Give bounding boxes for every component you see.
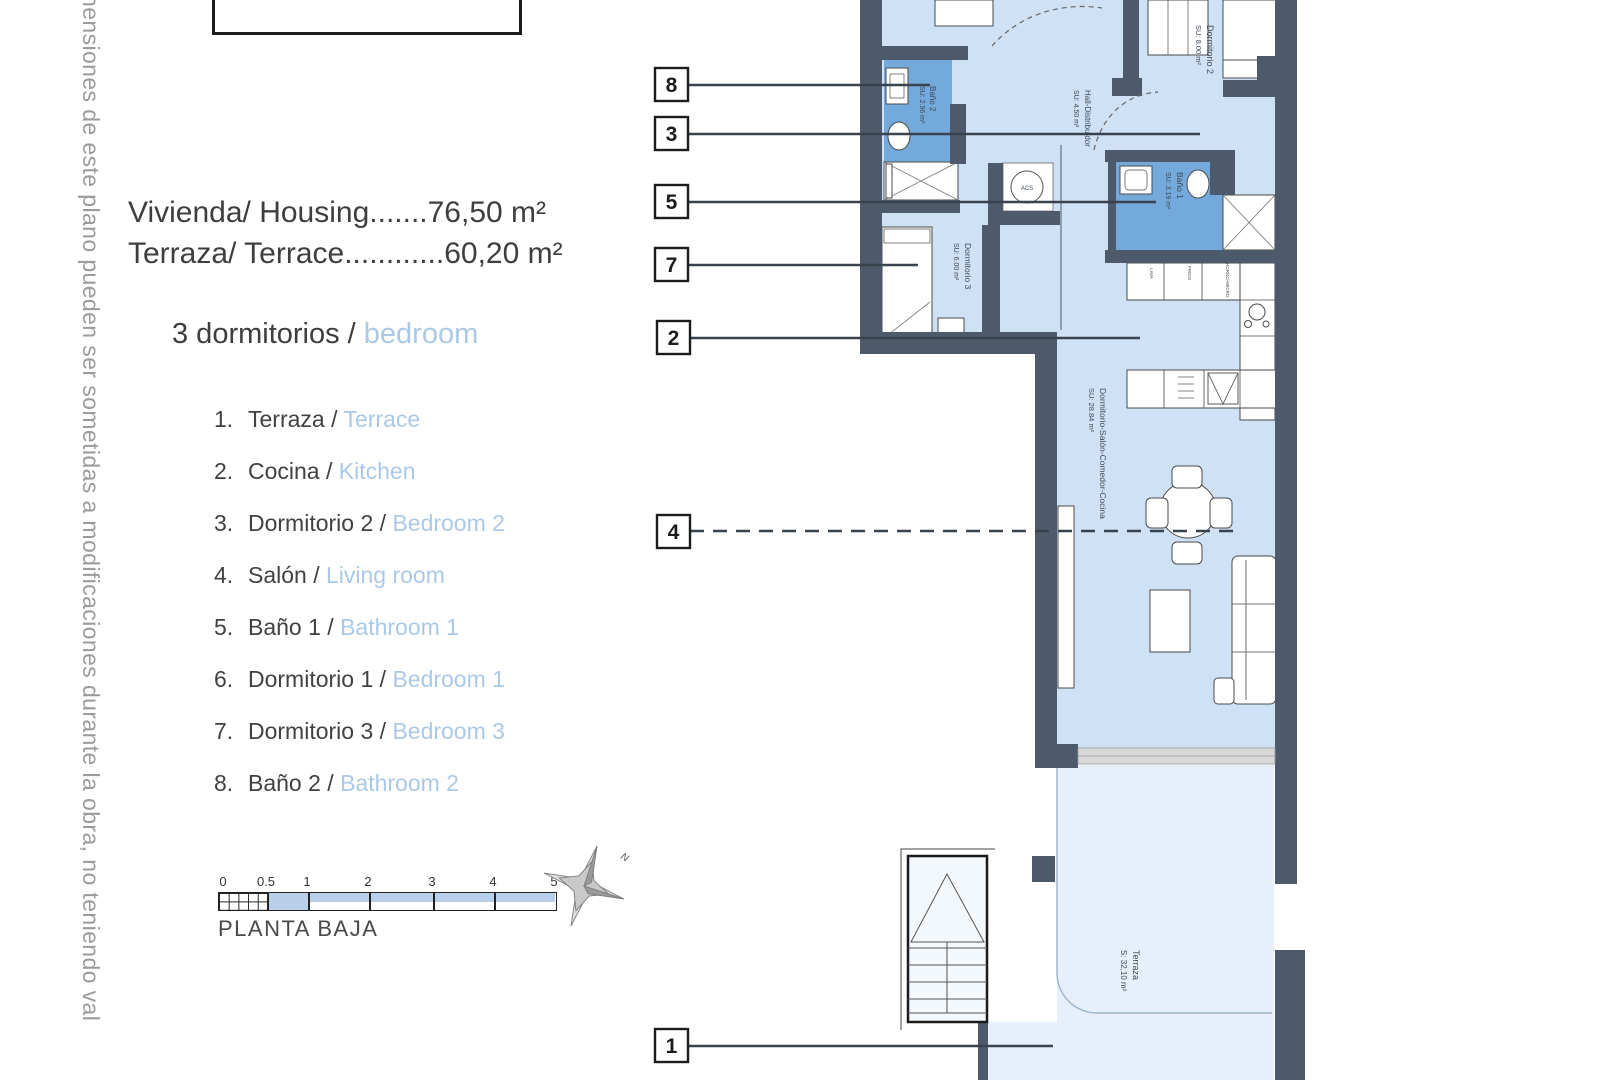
svg-text:SU: 8.00 m²: SU: 8.00 m²	[1194, 25, 1203, 66]
svg-text:SU: 4.50 m²: SU: 4.50 m²	[1072, 90, 1079, 128]
svg-text:8: 8	[666, 74, 678, 97]
callout-4: 4	[657, 515, 690, 548]
svg-text:Dormitorio 2: Dormitorio 2	[1205, 25, 1215, 74]
sliding-door	[1078, 748, 1275, 764]
svg-text:Terraza: Terraza	[1131, 950, 1141, 980]
callout-8: 8	[655, 68, 688, 101]
bed-dormitorio3	[882, 227, 932, 339]
chair	[1172, 466, 1202, 488]
tv-bench	[1058, 506, 1074, 688]
label-appliance-frigo: FRIGO	[1187, 266, 1192, 281]
svg-text:Baño 1: Baño 1	[1175, 172, 1185, 199]
appliance-row	[1127, 263, 1240, 300]
label-appliance-lava: LAVA	[1149, 268, 1154, 279]
terrace-floor	[987, 765, 1274, 1080]
svg-text:SU: 3.19 m²: SU: 3.19 m²	[1164, 172, 1171, 210]
coffee-table	[1150, 590, 1190, 652]
floor-plan: Baño 2 SU: 2.96 m² Hall-Distribuidor SU:…	[0, 0, 1620, 1080]
callout-2: 2	[657, 321, 690, 354]
toilet-bano2	[888, 122, 910, 150]
callout-7: 7	[655, 248, 688, 281]
svg-text:SU: 6.00 m²: SU: 6.00 m²	[952, 243, 959, 281]
svg-text:SU: 2.96 m²: SU: 2.96 m²	[918, 86, 925, 124]
svg-text:S: 32,10 m²: S: 32,10 m²	[1119, 950, 1128, 992]
svg-text:2: 2	[668, 327, 680, 350]
svg-text:SU: 28.84 m²: SU: 28.84 m²	[1087, 388, 1096, 433]
svg-text:7: 7	[666, 254, 678, 277]
label-acs: ACS	[1021, 186, 1033, 192]
label-appliance-horno: HORNO+MICRO	[1225, 263, 1230, 298]
svg-text:Hall-Distribuidor: Hall-Distribuidor	[1083, 90, 1092, 147]
svg-text:3: 3	[666, 123, 678, 146]
svg-text:5: 5	[666, 191, 678, 214]
chair	[1210, 498, 1232, 528]
svg-text:Dormitorio-Salón-Comedor-Cocin: Dormitorio-Salón-Comedor-Cocina	[1098, 388, 1108, 519]
kitchen-counter-top	[1127, 370, 1277, 408]
bed-dormitorio1	[935, 0, 993, 26]
svg-text:Dormitorio 3: Dormitorio 3	[963, 243, 973, 290]
terrace-stairs	[901, 849, 995, 1030]
callout-1: 1	[655, 1029, 688, 1062]
svg-text:Baño 2: Baño 2	[928, 86, 937, 112]
sofa-chaise	[1214, 678, 1234, 704]
callout-3: 3	[655, 117, 688, 150]
callout-boxes: 8 3 5 7 2 4 1	[655, 68, 690, 1062]
callout-5: 5	[655, 185, 688, 218]
chair	[1172, 542, 1202, 564]
svg-text:1: 1	[666, 1035, 678, 1058]
chair	[1146, 498, 1168, 528]
svg-text:4: 4	[668, 521, 680, 544]
sofa	[1232, 556, 1276, 704]
toilet-bano1	[1187, 170, 1209, 198]
